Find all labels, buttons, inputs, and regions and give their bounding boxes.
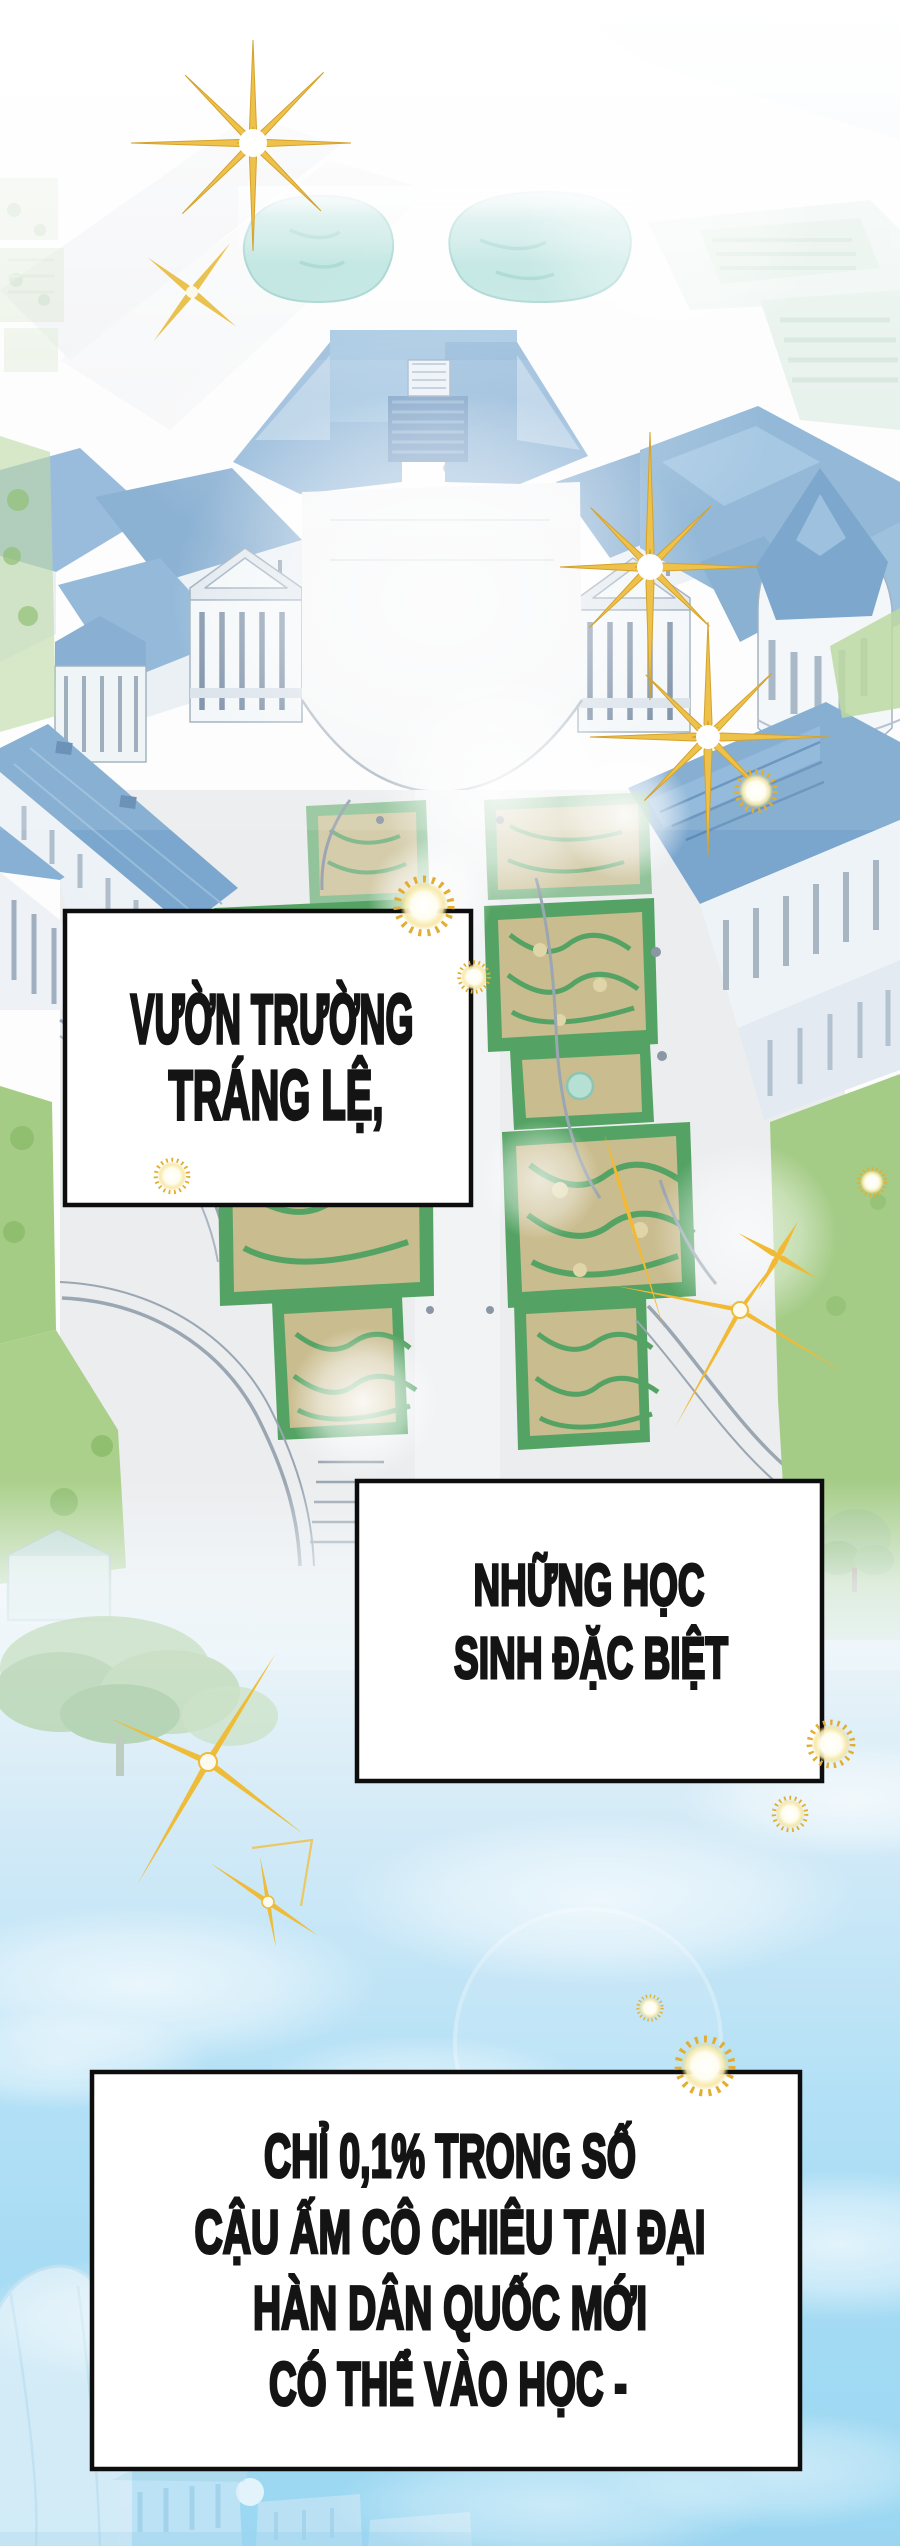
svg-text:NHỮNG HỌC: NHỮNG HỌC (474, 1553, 705, 1618)
svg-text:CẬU ẤM CÔ CHIÊU TẠI ĐẠI: CẬU ẤM CÔ CHIÊU TẠI ĐẠI (195, 2198, 706, 2266)
svg-text:HÀN DÂN QUỐC MỚI: HÀN DÂN QUỐC MỚI (253, 2274, 647, 2342)
svg-text:CÓ THỂ VÀO HỌC -: CÓ THỂ VÀO HỌC - (269, 2350, 627, 2418)
svg-text:VƯỜN TRƯỜNG: VƯỜN TRƯỜNG (131, 980, 414, 1058)
svg-text:CHỈ 0,1% TRONG SỐ: CHỈ 0,1% TRONG SỐ (264, 2122, 636, 2190)
svg-text:TRÁNG LỆ,: TRÁNG LỆ, (169, 1055, 384, 1134)
svg-text:SINH ĐẶC BIỆT: SINH ĐẶC BIỆT (454, 1626, 728, 1691)
